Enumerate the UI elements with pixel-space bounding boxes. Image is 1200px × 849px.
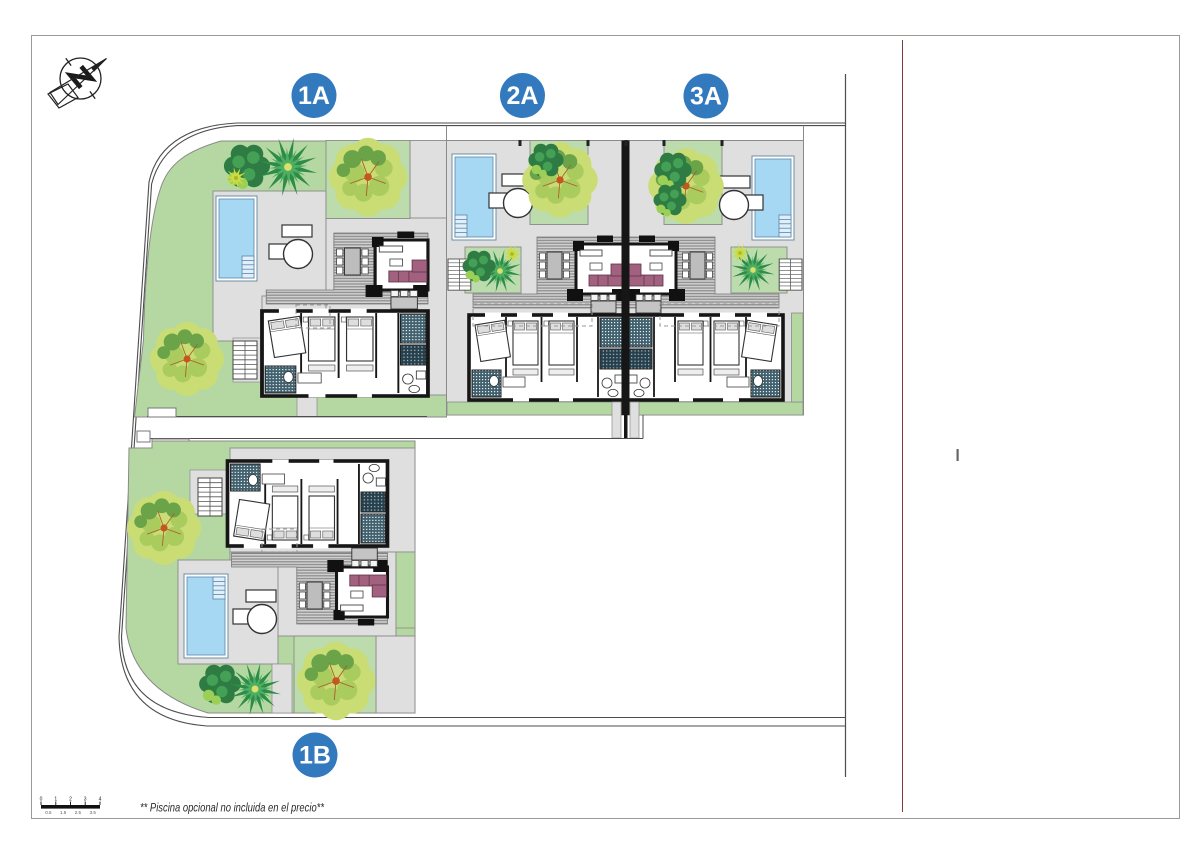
svg-text:3A: 3A: [690, 83, 722, 111]
svg-text:2: 2: [69, 797, 72, 803]
svg-text:0.5: 0.5: [45, 810, 52, 815]
svg-text:1A: 1A: [298, 82, 330, 110]
svg-text:** Piscina opcional no incluid: ** Piscina opcional no incluida en el pr…: [140, 801, 324, 815]
svg-text:2.5: 2.5: [75, 810, 82, 815]
svg-text:3: 3: [84, 797, 87, 803]
svg-text:1B: 1B: [299, 742, 331, 770]
svg-text:0: 0: [40, 797, 43, 803]
svg-text:1.5: 1.5: [60, 810, 67, 815]
svg-text:2A: 2A: [507, 82, 539, 110]
svg-text:1: 1: [54, 797, 57, 803]
svg-text:4: 4: [99, 797, 102, 803]
svg-text:3.5: 3.5: [90, 810, 97, 815]
